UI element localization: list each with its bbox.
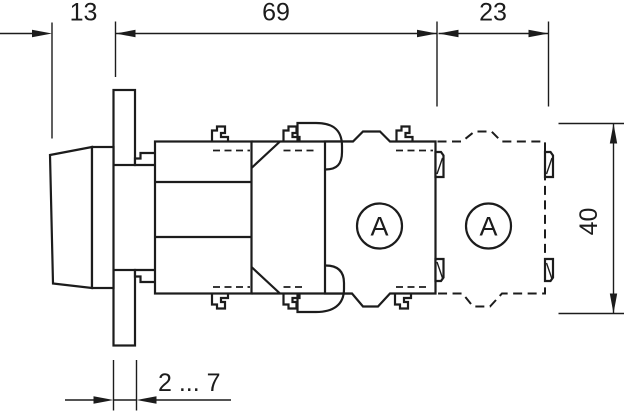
pushbutton-dimension-drawing: A A 13 69 [0, 0, 624, 413]
dimension-panel-thickness: 2 ... 7 [65, 360, 231, 411]
arrowhead-right-icon [94, 396, 114, 403]
arrowhead-left-icon [116, 30, 136, 37]
contact-block-1-label: A [370, 212, 388, 242]
pushbutton-operator [50, 142, 252, 294]
button-body [155, 142, 252, 294]
mounting-nut-top [135, 153, 155, 165]
clip-top-3 [397, 127, 413, 142]
dimension-23-value: 23 [479, 0, 507, 27]
mounting-nut-bottom [135, 270, 155, 282]
dimension-13-value: 13 [70, 0, 98, 27]
button-bezel [92, 147, 114, 288]
arrowhead-left-icon [137, 396, 157, 403]
panel-hatch-top [114, 90, 136, 165]
clip-top-1 [212, 127, 228, 142]
dimension-69: 69 [116, 0, 438, 107]
dimension-69-lines [116, 22, 438, 107]
arrowhead-right-icon [529, 30, 549, 37]
dimension-40: 40 [559, 124, 624, 314]
dimension-40-value: 40 [575, 208, 603, 236]
dimension-69-value: 69 [262, 0, 290, 27]
panel-hatch-bottom [114, 270, 136, 346]
arrowhead-down-icon [610, 294, 617, 314]
dimension-23: 23 [439, 0, 549, 107]
dimension-13: 13 [0, 0, 116, 139]
arrowhead-right-icon [32, 30, 52, 37]
dimension-13-lines [0, 22, 116, 139]
technical-drawing-page: A A 13 69 [0, 0, 624, 413]
clip-bottom-1 [212, 294, 228, 309]
contact-block-2: A [438, 132, 546, 307]
contact-block-2-label: A [479, 212, 497, 242]
arrowhead-left-icon [439, 30, 459, 37]
button-cap [50, 147, 92, 288]
dimension-panel-thickness-value: 2 ... 7 [158, 369, 221, 397]
arrowhead-right-icon [417, 30, 437, 37]
clip-bottom-3 [395, 294, 411, 309]
arrowhead-up-icon [610, 124, 617, 144]
contact-block-1: A [298, 123, 436, 312]
mounting-panel [114, 90, 136, 346]
holder-chamfers [252, 142, 281, 294]
